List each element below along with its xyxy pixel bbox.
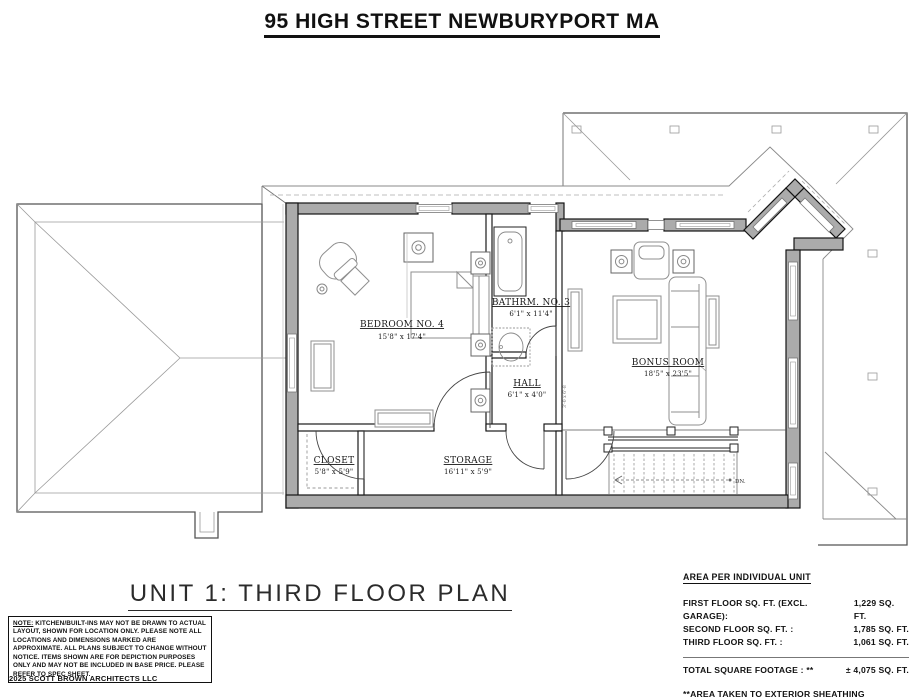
coffee-table xyxy=(613,296,661,343)
bedroom-furniture xyxy=(311,233,490,427)
plan-title: UNIT 1: THIRD FLOOR PLAN xyxy=(128,580,513,611)
area-row: FIRST FLOOR SQ. FT. (EXCL. GARAGE): 1,22… xyxy=(683,597,909,623)
room-dims-hall: 6'1" x 4'0" xyxy=(508,391,547,399)
page: 95 HIGH STREET NEWBURYPORT MA xyxy=(0,0,924,698)
area-divider xyxy=(683,657,909,658)
stair-down-label: DN. xyxy=(735,479,746,485)
left-roof xyxy=(17,204,286,538)
room-label-bedroom: BEDROOM NO. 4 xyxy=(360,320,444,330)
plan-title-wrap: UNIT 1: THIRD FLOOR PLAN xyxy=(0,580,640,611)
area-row-value: 1,229 SQ. FT. xyxy=(854,597,909,623)
bathroom-door xyxy=(526,326,556,356)
area-heading: AREA PER INDIVIDUAL UNIT xyxy=(683,572,811,584)
room-dims-storage: 16'11" x 5'9" xyxy=(444,468,492,476)
area-total-label: TOTAL SQUARE FOOTAGE : ** xyxy=(683,664,813,677)
room-dims-bedroom: 15'8" x 17'4" xyxy=(378,333,426,341)
floor-plan-drawing: DN. BEDROOM NO. 4 15'8" x 17'4" BATHRM. … xyxy=(0,0,924,562)
bathroom-fixtures xyxy=(492,227,530,366)
door-size-label: 3'-0 x 6'-8 xyxy=(562,385,568,408)
area-row-label: FIRST FLOOR SQ. FT. (EXCL. GARAGE): xyxy=(683,597,854,623)
room-dims-closet: 5'8" x 5'9" xyxy=(315,468,354,476)
stairs: DN. xyxy=(604,427,746,494)
room-label-bathroom: BATHRM. NO. 3 xyxy=(492,298,570,308)
stair-treads xyxy=(614,454,734,494)
down-arrow: DN. xyxy=(615,476,746,485)
room-dims-bonus: 18'5" x 23'5" xyxy=(644,370,692,378)
area-row-label: THIRD FLOOR SQ. FT. : xyxy=(683,636,783,649)
room-dims-bathroom: 6'1" x 11'4" xyxy=(509,310,552,318)
area-total-value: ± 4,075 SQ. FT. xyxy=(846,664,909,677)
area-total-row: TOTAL SQUARE FOOTAGE : ** ± 4,075 SQ. FT… xyxy=(683,664,909,677)
bonus-door xyxy=(566,431,614,479)
area-row-value: 1,061 SQ. FT. xyxy=(853,636,909,649)
copyright-text: 2025 SCOTT BROWN ARCHITECTS LLC xyxy=(9,674,157,683)
storage-door xyxy=(506,431,544,469)
room-label-storage: STORAGE xyxy=(444,456,493,466)
area-row: SECOND FLOOR SQ. FT. : 1,785 SQ. FT. xyxy=(683,623,909,636)
interior-walls xyxy=(298,214,786,495)
area-panel: AREA PER INDIVIDUAL UNIT FIRST FLOOR SQ.… xyxy=(683,572,909,698)
area-row-value: 1,785 SQ. FT. xyxy=(853,623,909,636)
stair-railing xyxy=(604,427,738,452)
room-label-hall: HALL xyxy=(513,379,541,389)
vanity xyxy=(492,328,530,366)
room-label-closet: CLOSET xyxy=(314,456,355,466)
armchair xyxy=(634,242,669,279)
note-label: NOTE: xyxy=(13,620,33,627)
note-text: KITCHEN/BUILT-INS MAY NOT BE DRAWN TO AC… xyxy=(13,620,206,678)
area-footnote: **AREA TAKEN TO EXTERIOR SHEATHING xyxy=(683,689,909,698)
area-row-label: SECOND FLOOR SQ. FT. : xyxy=(683,623,793,636)
sofa xyxy=(669,277,706,425)
room-label-bonus: BONUS ROOM xyxy=(632,358,704,368)
bonus-furniture xyxy=(568,242,719,425)
area-row: THIRD FLOOR SQ. FT. : 1,061 SQ. FT. xyxy=(683,636,909,649)
